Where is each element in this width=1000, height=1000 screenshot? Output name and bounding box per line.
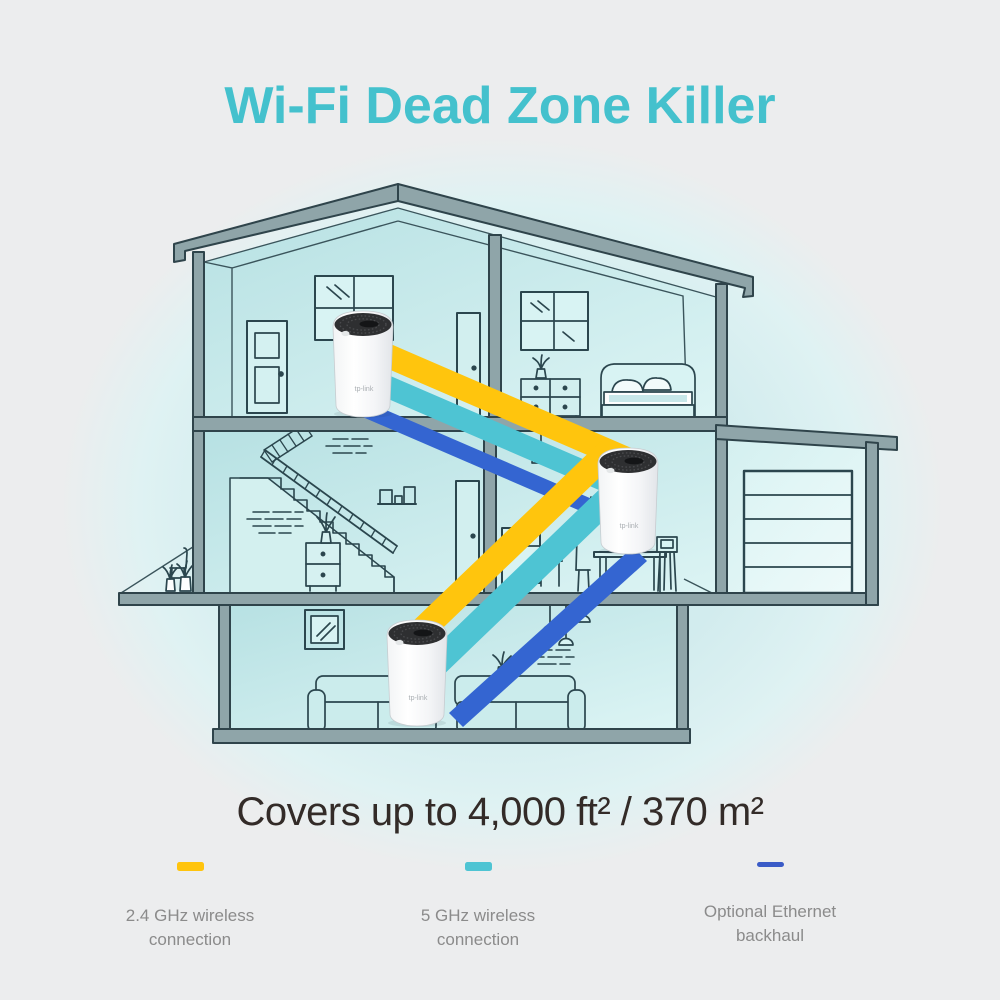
legend-label-ethernet: Optional Ethernet backhaul <box>704 900 836 948</box>
ground-wall-left <box>219 605 230 730</box>
ground-wall-right <box>677 605 688 730</box>
legend: 2.4 GHz wireless connection 5 GHz wirele… <box>0 858 1000 968</box>
legend-label-5ghz: 5 GHz wireless connection <box>421 904 535 952</box>
bedroom-window <box>521 292 588 350</box>
nightstand <box>306 543 340 591</box>
legend-swatch-5ghz <box>465 862 492 871</box>
deco-unit-attic <box>333 311 393 418</box>
legend-swatch-ethernet <box>757 862 784 867</box>
legend-item-ethernet: Optional Ethernet backhaul <box>660 858 880 948</box>
garage-door <box>744 471 852 593</box>
legend-label-24ghz: 2.4 GHz wireless connection <box>126 904 254 952</box>
page-title: Wi-Fi Dead Zone Killer <box>0 76 1000 136</box>
legend-item-5ghz: 5 GHz wireless connection <box>368 858 588 952</box>
attic-door <box>247 321 287 413</box>
house-illustration: tp-link <box>0 0 1000 1000</box>
coverage-text: Covers up to 4,000 ft² / 370 m² <box>0 790 1000 835</box>
deco-unit-living <box>387 620 447 727</box>
ground-floor-slab <box>213 729 690 743</box>
garage-wall-right <box>866 442 878 605</box>
deco-unit-dining <box>598 448 658 555</box>
wall-right <box>716 284 727 604</box>
legend-item-24ghz: 2.4 GHz wireless connection <box>80 858 300 952</box>
picture-frame <box>305 610 344 649</box>
bed <box>601 364 695 422</box>
legend-swatch-24ghz <box>177 862 204 871</box>
